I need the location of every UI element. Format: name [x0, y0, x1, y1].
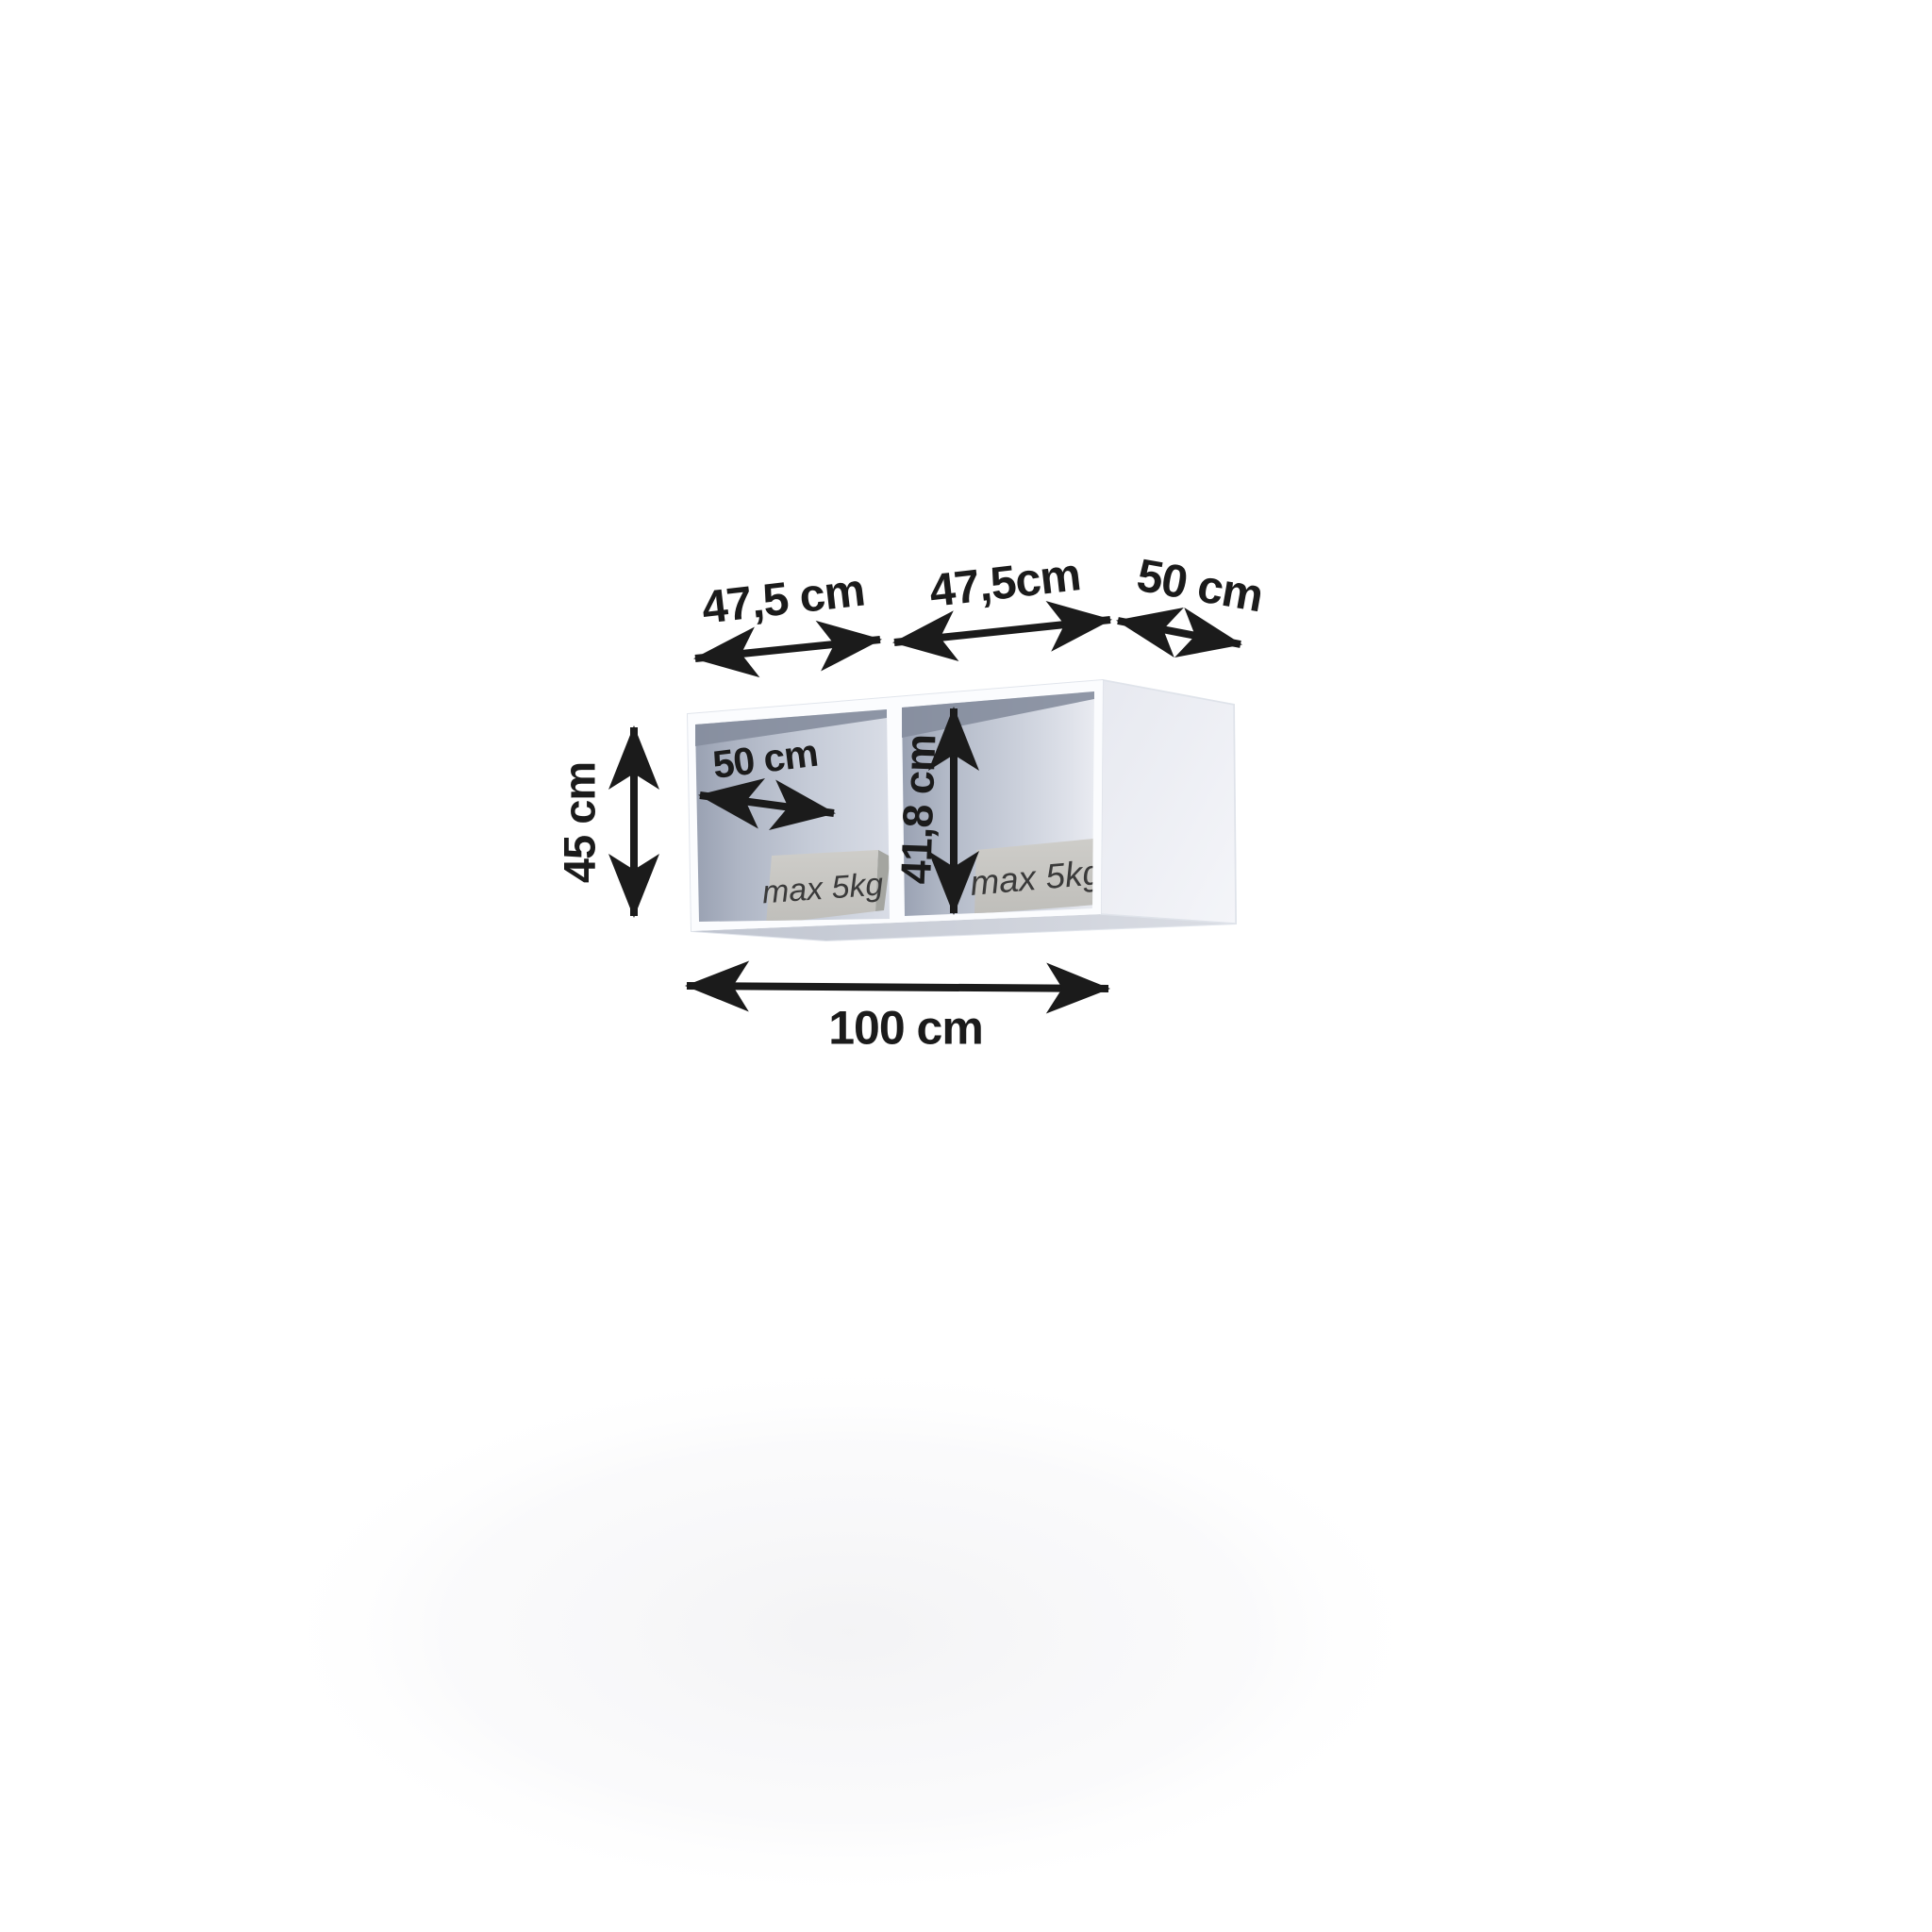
arrow-width-left-compartment: [695, 640, 880, 658]
cabinet-right-side-panel: [1101, 680, 1236, 924]
backdrop-floor-glow: [264, 1358, 1434, 1906]
arrow-depth-top: [1118, 621, 1241, 644]
arrow-width-right-compartment: [894, 620, 1110, 642]
cabinet-dimension-diagram: max 5kg max 5kg 47,5 cm 47,5cm 50 cm: [0, 0, 1932, 1932]
max-load-card-right: max 5kg: [969, 839, 1106, 914]
label-height-outer: 45 cm: [554, 762, 604, 883]
arrow-width-total: [687, 986, 1108, 989]
cabinet-render: max 5kg max 5kg: [688, 680, 1236, 941]
product-image-canvas: max 5kg max 5kg 47,5 cm 47,5cm 50 cm: [0, 0, 1932, 1932]
label-width-total: 100 cm: [828, 1002, 983, 1055]
label-width-right-compartment: 47,5cm: [926, 549, 1082, 617]
label-height-inner: 41,8 cm: [891, 734, 944, 885]
label-width-left-compartment: 47,5 cm: [699, 565, 867, 634]
label-depth-top: 50 cm: [1133, 550, 1266, 622]
